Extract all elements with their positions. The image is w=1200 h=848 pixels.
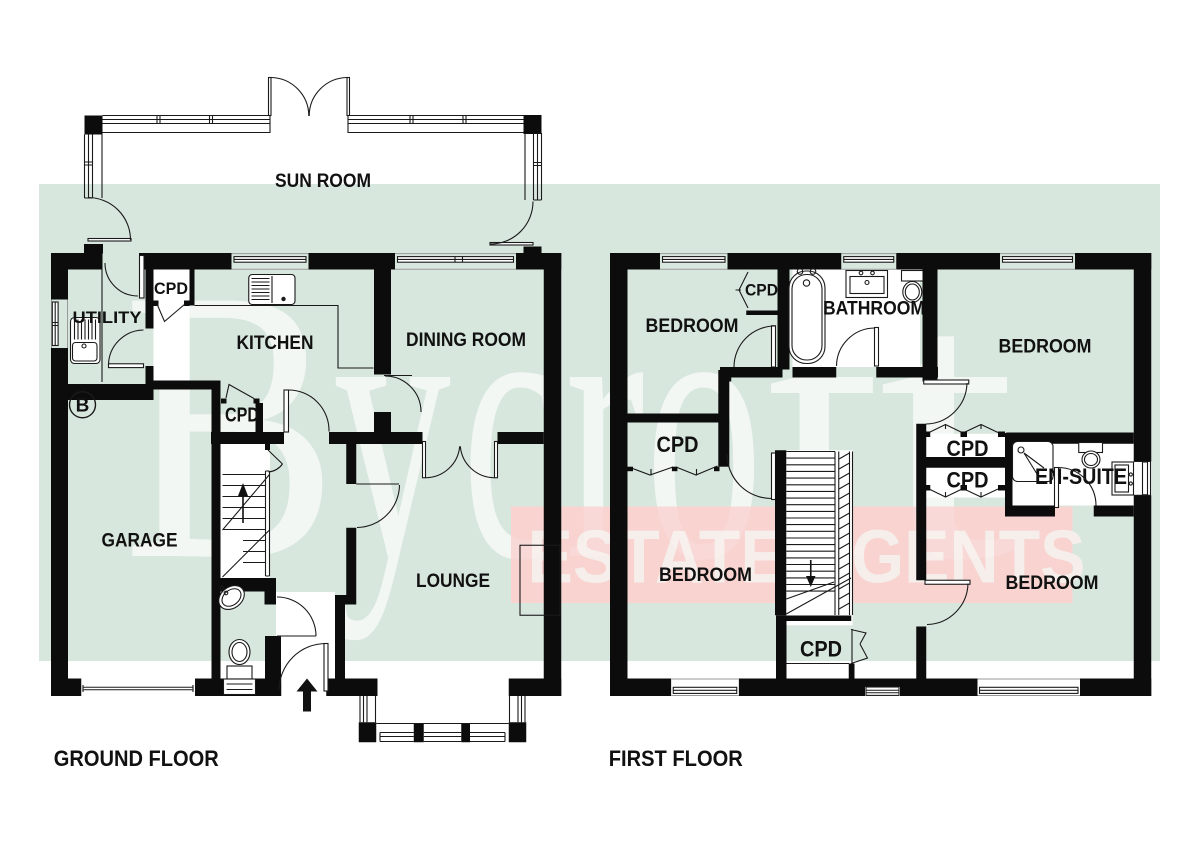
svg-text:LOUNGE: LOUNGE (416, 571, 490, 592)
svg-text:FIRST FLOOR: FIRST FLOOR (609, 746, 743, 771)
svg-text:KITCHEN: KITCHEN (237, 333, 314, 354)
svg-text:CPD: CPD (745, 281, 778, 300)
svg-text:CPD: CPD (657, 432, 699, 457)
svg-text:BATHROOM: BATHROOM (823, 299, 925, 320)
svg-text:CPD: CPD (947, 468, 989, 493)
svg-text:EN-SUITE: EN-SUITE (1035, 464, 1127, 489)
svg-text:r: r (565, 209, 645, 641)
svg-text:GARAGE: GARAGE (102, 531, 178, 552)
svg-text:CPD: CPD (800, 637, 842, 662)
svg-text:B: B (76, 396, 90, 417)
svg-text:CPD: CPD (225, 405, 259, 427)
svg-text:BEDROOM: BEDROOM (646, 316, 739, 337)
svg-text:UTILITY: UTILITY (73, 308, 143, 327)
svg-text:BEDROOM: BEDROOM (999, 337, 1092, 358)
svg-text:GROUND FLOOR: GROUND FLOOR (54, 746, 219, 771)
svg-text:DINING ROOM: DINING ROOM (406, 330, 526, 351)
svg-text:BEDROOM: BEDROOM (659, 565, 752, 586)
svg-text:SUN ROOM: SUN ROOM (275, 171, 371, 192)
svg-text:CPD: CPD (154, 279, 188, 298)
svg-text:CPD: CPD (947, 436, 989, 461)
svg-text:BEDROOM: BEDROOM (1006, 573, 1099, 594)
